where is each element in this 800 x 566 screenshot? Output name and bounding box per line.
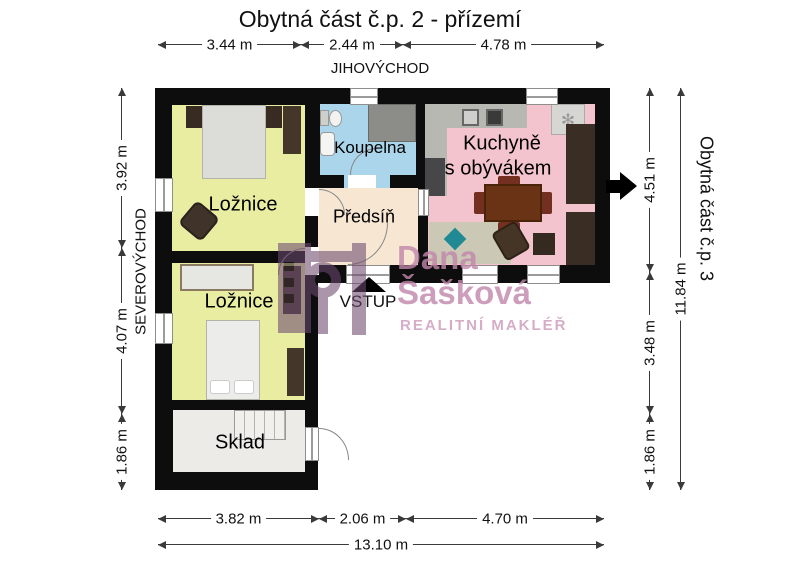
shower xyxy=(368,104,416,142)
room-label-bedroom-1: Ložnice xyxy=(209,194,278,217)
dimension-top-3: 4.78 m xyxy=(403,36,604,54)
bed-pillow-1 xyxy=(210,380,230,394)
room-label-bathroom: Koupelna xyxy=(334,138,406,158)
room-label-storage: Sklad xyxy=(215,432,265,455)
room-label-kitchen-2: s obývákem xyxy=(445,158,552,181)
toilet-bowl xyxy=(329,110,342,127)
window-kitchen-top xyxy=(526,88,558,105)
toilet xyxy=(320,110,329,126)
dimension-bottom-3: 4.70 m xyxy=(406,510,604,528)
dimension-left-1: 3.92 m xyxy=(113,88,131,248)
dimension-right-2: 3.48 m xyxy=(641,272,659,414)
room-label-hallway: Předsíň xyxy=(333,207,395,228)
window-bedroom-1-left xyxy=(155,178,173,212)
dimension-left-2: 4.07 m xyxy=(113,248,131,414)
bed-pillow-2 xyxy=(234,380,254,394)
wardrobe-bedroom-1 xyxy=(283,106,301,154)
dimension-right-total: 11.84 m xyxy=(672,88,690,490)
window-bathroom-top xyxy=(350,88,378,105)
door-storage xyxy=(305,427,319,461)
page-title: Obytná část č.p. 2 - přízemí xyxy=(0,6,760,33)
direction-label-northeast: SEVEROVÝCHOD xyxy=(133,192,150,352)
window-bedroom-2-left xyxy=(155,313,173,344)
dimension-right-1: 4.51 m xyxy=(641,88,659,272)
neighbor-arrow-shaft xyxy=(606,180,621,193)
dimension-top-2: 2.44 m xyxy=(301,36,403,54)
dimension-bottom-2: 2.06 m xyxy=(319,510,406,528)
door-arc-storage xyxy=(319,428,349,460)
door-bedroom-1 xyxy=(305,188,319,216)
dimension-bottom-total: 13.10 m xyxy=(158,536,604,554)
stove-burner-2 xyxy=(486,109,503,126)
entrance-label: VSTUP xyxy=(330,292,406,312)
watermark-last-name: Šašková xyxy=(397,274,531,312)
window-kitchen-bottom-2 xyxy=(527,265,560,284)
dimension-right-3: 1.86 m xyxy=(641,414,659,490)
window-hallway-kitchen xyxy=(418,189,429,216)
nightstand-2 xyxy=(266,106,282,128)
dimension-bottom-1: 3.82 m xyxy=(158,510,319,528)
room-label-kitchen-1: Kuchyně xyxy=(463,133,541,156)
cabinet-kitchen-upper xyxy=(566,124,595,204)
door-bathroom xyxy=(348,175,376,188)
dimension-left-3: 1.86 m xyxy=(113,414,131,490)
ottoman xyxy=(533,233,555,255)
single-bed-bedroom-2 xyxy=(180,264,254,291)
neighbor-part-label: Obytná část č.p. 3 xyxy=(696,84,717,334)
bed-bedroom-1 xyxy=(202,105,266,179)
nightstand-1 xyxy=(186,106,202,128)
room-label-bedroom-2: Ložnice xyxy=(205,291,274,314)
neighbor-arrow-icon xyxy=(620,172,637,200)
cabinet-bedroom-2 xyxy=(287,348,304,396)
dining-table xyxy=(484,184,542,222)
floorplan-canvas: Obytná část č.p. 2 - přízemí JIHOVÝCHOD … xyxy=(0,0,800,566)
watermark-first-name: Dana xyxy=(397,239,478,277)
sink xyxy=(320,132,335,156)
dimension-top-1: 3.44 m xyxy=(158,36,301,54)
stove-burner-1 xyxy=(462,109,479,126)
watermark-tagline: REALITNÍ MAKLÉŘ xyxy=(400,317,568,334)
direction-label-southeast: JIHOVÝCHOD xyxy=(0,60,760,77)
cabinet-kitchen-lower xyxy=(566,212,595,265)
